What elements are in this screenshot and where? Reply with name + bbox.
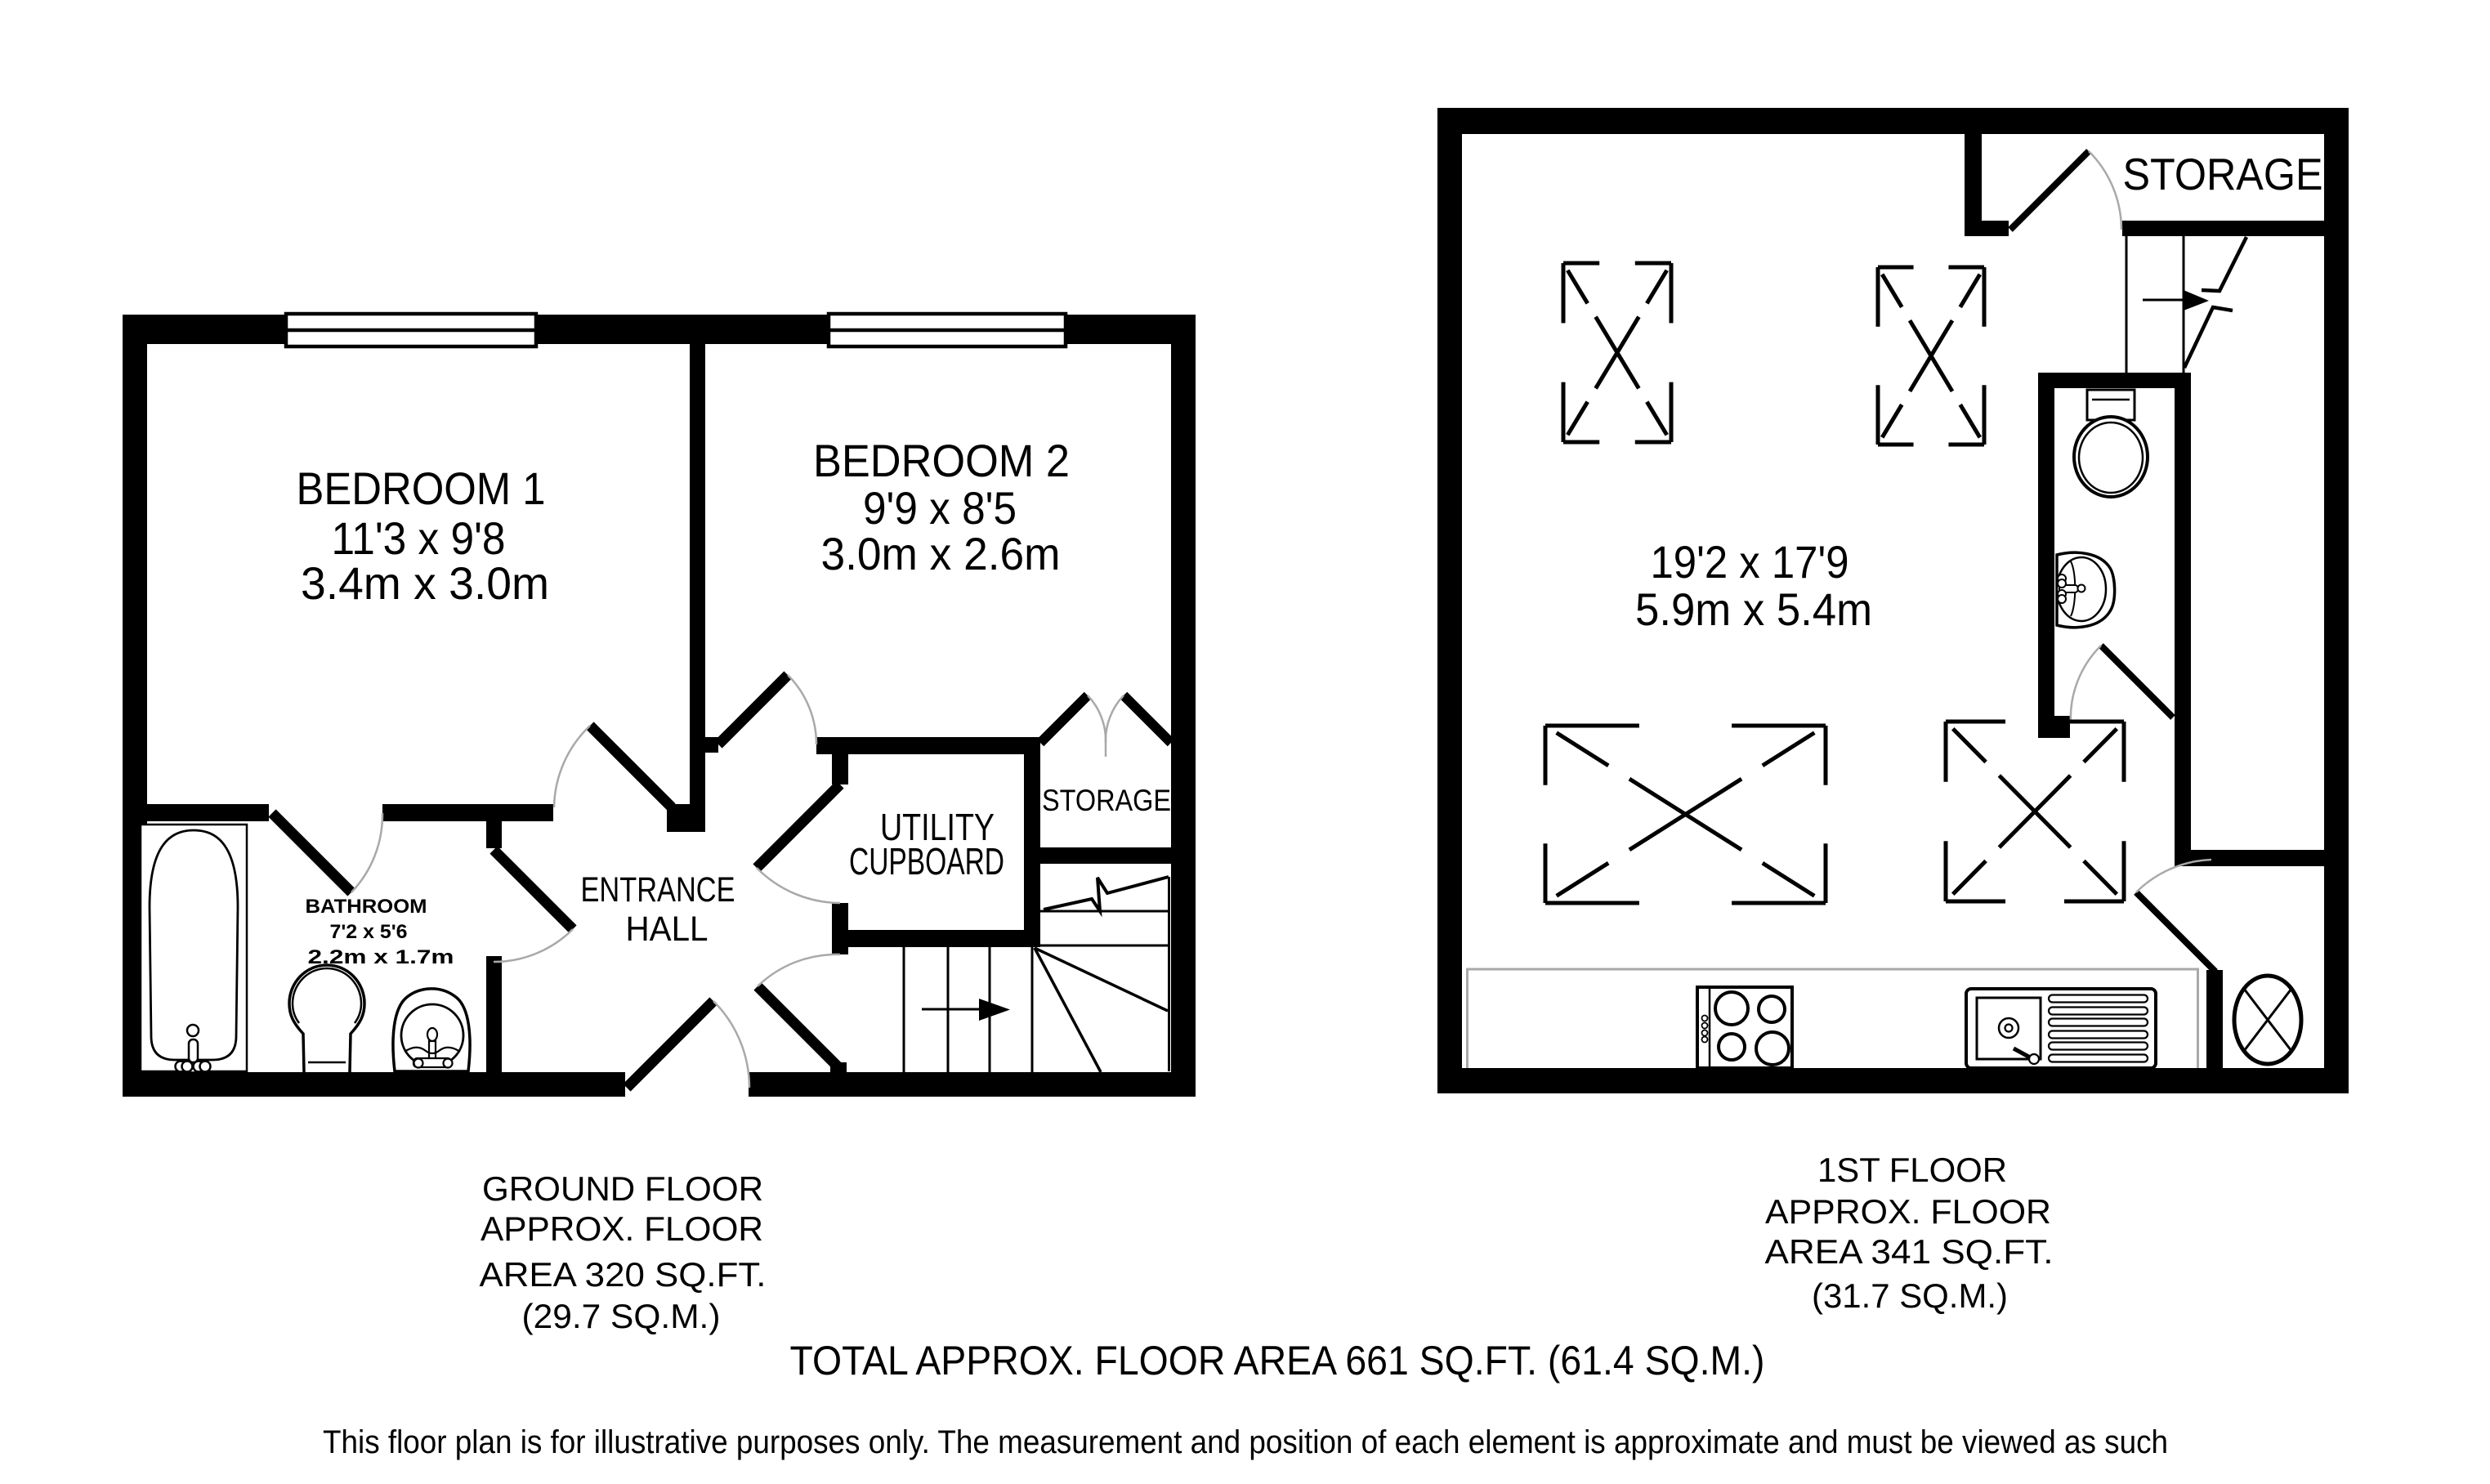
svg-text:3.0m x 2.6m: 3.0m x 2.6m bbox=[821, 528, 1061, 579]
svg-text:STORAGE: STORAGE bbox=[2123, 149, 2323, 199]
svg-text:BEDROOM 1: BEDROOM 1 bbox=[297, 463, 546, 514]
svg-text:APPROX. FLOOR: APPROX. FLOOR bbox=[1765, 1192, 2051, 1231]
svg-text:CUPBOARD: CUPBOARD bbox=[849, 840, 1004, 883]
svg-text:1ST FLOOR: 1ST FLOOR bbox=[1817, 1151, 2007, 1189]
svg-text:ENTRANCE: ENTRANCE bbox=[581, 870, 735, 910]
svg-text:11'3 x 9'8: 11'3 x 9'8 bbox=[332, 512, 506, 564]
svg-text:3.4m x 3.0m: 3.4m x 3.0m bbox=[301, 557, 549, 609]
svg-text:19'2 x 17'9: 19'2 x 17'9 bbox=[1651, 536, 1849, 588]
svg-text:(29.7 SQ.M.): (29.7 SQ.M.) bbox=[522, 1297, 721, 1335]
svg-text:This floor plan is for illustr: This floor plan is for illustrative purp… bbox=[323, 1424, 2168, 1460]
svg-text:(31.7 SQ.M.): (31.7 SQ.M.) bbox=[1812, 1276, 2008, 1315]
svg-text:AREA 320 SQ.FT.: AREA 320 SQ.FT. bbox=[480, 1255, 767, 1294]
svg-text:APPROX. FLOOR: APPROX. FLOOR bbox=[481, 1209, 763, 1248]
svg-text:BATHROOM: BATHROOM bbox=[306, 896, 427, 918]
svg-text:5.9m x 5.4m: 5.9m x 5.4m bbox=[1635, 583, 1872, 635]
svg-text:HALL: HALL bbox=[626, 910, 709, 949]
svg-text:TOTAL APPROX. FLOOR AREA 661 S: TOTAL APPROX. FLOOR AREA 661 SQ.FT. (61.… bbox=[790, 1338, 1765, 1383]
svg-text:9'9 x 8'5: 9'9 x 8'5 bbox=[863, 482, 1017, 534]
svg-text:GROUND FLOOR: GROUND FLOOR bbox=[482, 1169, 763, 1208]
svg-text:2.2m x 1.7m: 2.2m x 1.7m bbox=[308, 946, 454, 968]
svg-text:7'2 x 5'6: 7'2 x 5'6 bbox=[330, 921, 408, 943]
svg-text:STORAGE: STORAGE bbox=[1042, 784, 1171, 817]
svg-text:BEDROOM 2: BEDROOM 2 bbox=[813, 435, 1070, 486]
svg-text:AREA 341 SQ.FT.: AREA 341 SQ.FT. bbox=[1765, 1232, 2054, 1271]
